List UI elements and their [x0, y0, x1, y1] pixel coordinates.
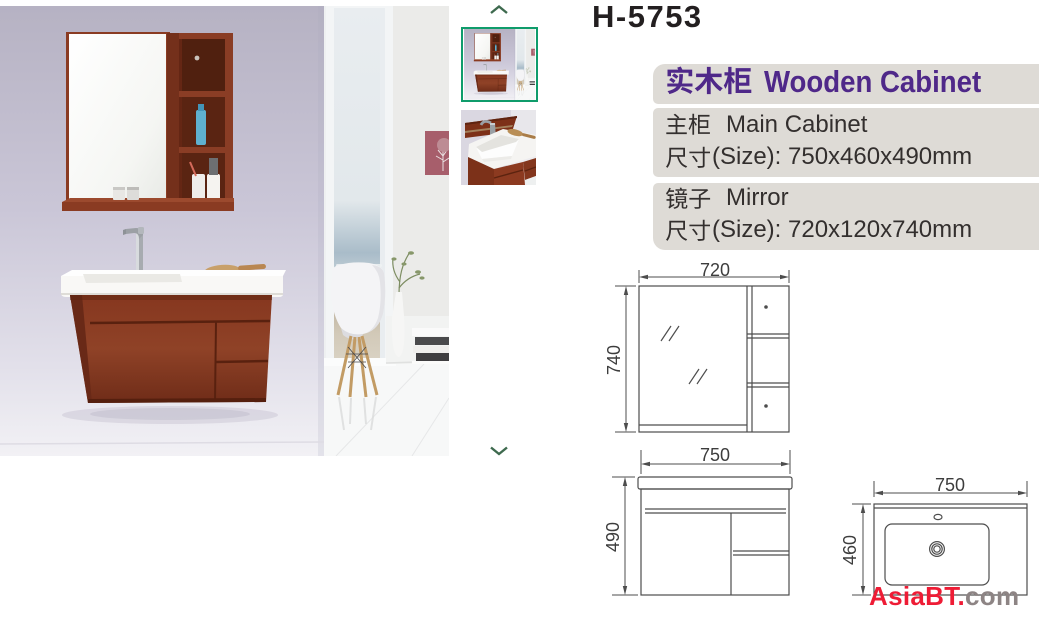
svg-text:740: 740: [604, 345, 624, 375]
svg-text:460: 460: [840, 535, 860, 565]
svg-text:490: 490: [603, 522, 623, 552]
svg-text:720: 720: [700, 260, 730, 280]
svg-text:750: 750: [935, 475, 965, 495]
svg-text:750: 750: [700, 445, 730, 465]
